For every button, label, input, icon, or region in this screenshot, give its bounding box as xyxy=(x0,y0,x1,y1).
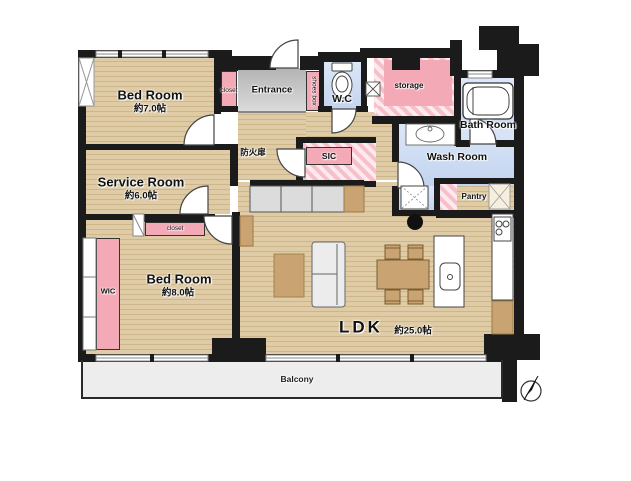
bedroom-a-door xyxy=(184,115,214,145)
ldk-label: LDK xyxy=(339,319,383,336)
kitchen-counter xyxy=(492,214,513,334)
bedroom-b-size: 約8.0帖 xyxy=(162,288,194,298)
pipe-space-icon xyxy=(366,82,380,96)
bedroom-b-label: Bed Room xyxy=(147,273,212,286)
service-room-door xyxy=(180,186,208,214)
storage-label: storage xyxy=(395,82,424,90)
wic-shelf xyxy=(83,238,96,350)
dining-set-icon xyxy=(377,245,429,304)
service-room-label: Service Room xyxy=(98,176,185,189)
pantry-shaft-icon xyxy=(489,184,510,209)
shoes-box-label: shoes box xyxy=(310,76,317,106)
sic-label: SIC xyxy=(322,152,336,161)
bath-room-label: Bath Room xyxy=(460,120,516,131)
sofa-icon xyxy=(312,242,345,307)
balcony-label: Balcony xyxy=(280,375,313,384)
floorplan: Bed Room 約7.0帖 closet Entrance shoes box… xyxy=(0,0,631,481)
bedroom-a-size: 約7.0帖 xyxy=(134,104,166,114)
washing-machine-icon xyxy=(401,186,428,209)
entrance-door xyxy=(270,40,298,68)
stove-icon xyxy=(494,217,511,241)
ldk-size: 約25.0帖 xyxy=(394,326,432,336)
cabinet-row xyxy=(240,186,364,246)
service-room-size: 約6.0帖 xyxy=(125,191,157,201)
wc-label: W.C xyxy=(332,94,352,105)
side-table-icon xyxy=(274,254,304,297)
closet-b-label: closet xyxy=(167,226,184,233)
pantry-label: Pantry xyxy=(462,193,487,201)
sliding-panel xyxy=(133,214,144,236)
entrance-label: Entrance xyxy=(252,85,293,95)
fire-door-arc xyxy=(277,149,305,177)
wash-door xyxy=(398,162,424,188)
compass-icon xyxy=(521,376,541,401)
bathtub-icon xyxy=(463,83,513,119)
fire-door-label: 防火扉 xyxy=(240,148,266,157)
bedroom-b-door xyxy=(204,216,232,244)
closet-a-label: closet xyxy=(221,88,238,95)
fridge-space xyxy=(492,301,513,334)
vanity-sink-icon xyxy=(406,124,455,145)
wc-door xyxy=(332,109,356,133)
column-dot xyxy=(407,214,423,230)
wic-label: WIC xyxy=(101,287,116,295)
kitchen-island-icon xyxy=(434,236,464,307)
bedroom-a-label: Bed Room xyxy=(118,89,183,102)
plan-graphics xyxy=(0,0,631,481)
wash-room-label: Wash Room xyxy=(427,152,487,163)
